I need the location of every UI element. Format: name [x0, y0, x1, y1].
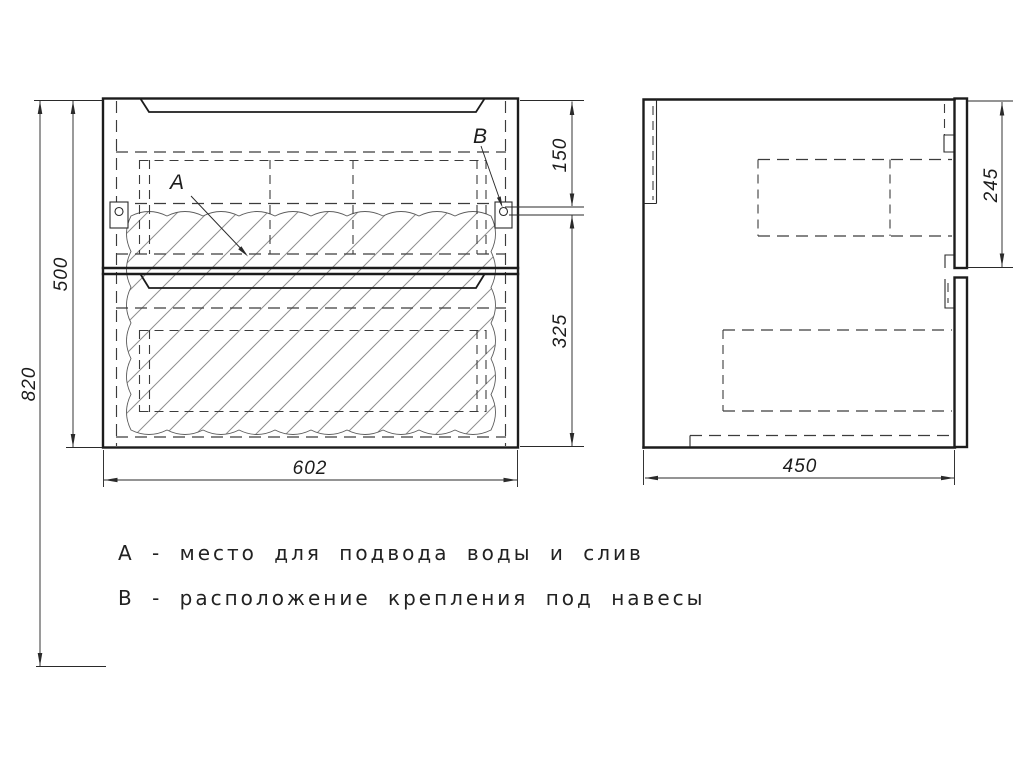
dim-cabinet-height: 500	[51, 101, 75, 448]
dim-depth: 450	[644, 450, 955, 485]
dim-overall-height: 820	[19, 101, 42, 667]
side-hidden-lines	[653, 104, 952, 436]
side-view	[644, 99, 968, 448]
hatch-area	[127, 212, 496, 435]
dim-depth-text: 450	[783, 456, 818, 477]
dim-bracket-to-bottom: 325	[550, 216, 574, 447]
dim-bracket-from-top-text: 150	[550, 138, 571, 173]
technical-drawing: A B	[0, 0, 1024, 768]
side-top-drawer-front	[955, 99, 968, 269]
dim-cabinet-width-text: 602	[293, 458, 328, 479]
top-drawer-recess	[141, 100, 484, 113]
legend: А - место для подвода воды и слив В - ра…	[118, 541, 705, 610]
legend-item-b: В - расположение крепления под навесы	[118, 586, 705, 610]
front-view: A B	[103, 99, 518, 448]
dim-drawer-front-height: 245	[967, 101, 1013, 268]
dim-cabinet-height-text: 500	[51, 257, 72, 292]
mounting-bracket-left	[110, 202, 128, 228]
dim-drawer-front-height-text: 245	[981, 168, 1002, 204]
label-b: B	[473, 125, 487, 148]
drawing-sheet: A B	[0, 0, 1024, 768]
side-outline	[644, 99, 968, 448]
legend-item-a: А - место для подвода воды и слив	[118, 541, 644, 565]
dim-cabinet-width: 602	[104, 450, 518, 487]
label-a: A	[168, 171, 184, 194]
dim-bracket-to-bottom-text: 325	[550, 314, 571, 349]
dim-bracket-from-top: 150	[550, 102, 574, 207]
dim-overall-height-text: 820	[19, 367, 40, 402]
side-bottom-drawer-front	[955, 278, 968, 448]
